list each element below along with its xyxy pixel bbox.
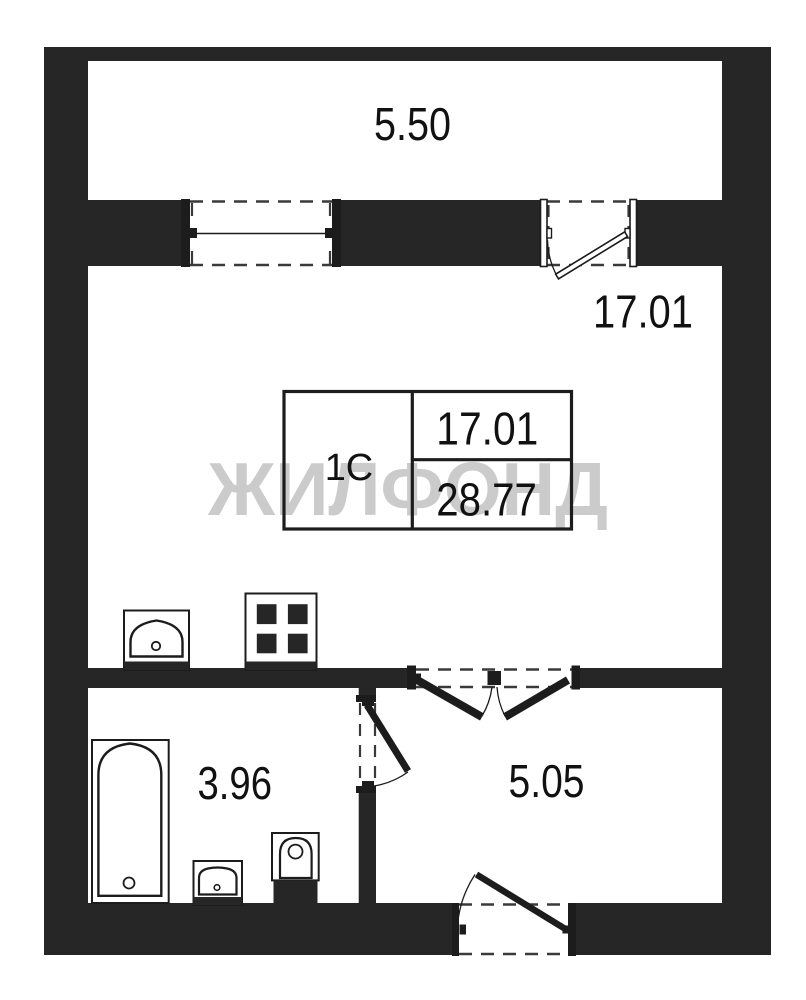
svg-text:5.50: 5.50 xyxy=(374,98,451,150)
svg-text:28.77: 28.77 xyxy=(436,473,537,525)
svg-text:5.05: 5.05 xyxy=(509,755,585,807)
svg-text:1С: 1С xyxy=(325,447,374,489)
svg-text:17.01: 17.01 xyxy=(593,286,693,338)
svg-text:17.01: 17.01 xyxy=(436,403,538,455)
svg-text:3.96: 3.96 xyxy=(198,757,273,809)
